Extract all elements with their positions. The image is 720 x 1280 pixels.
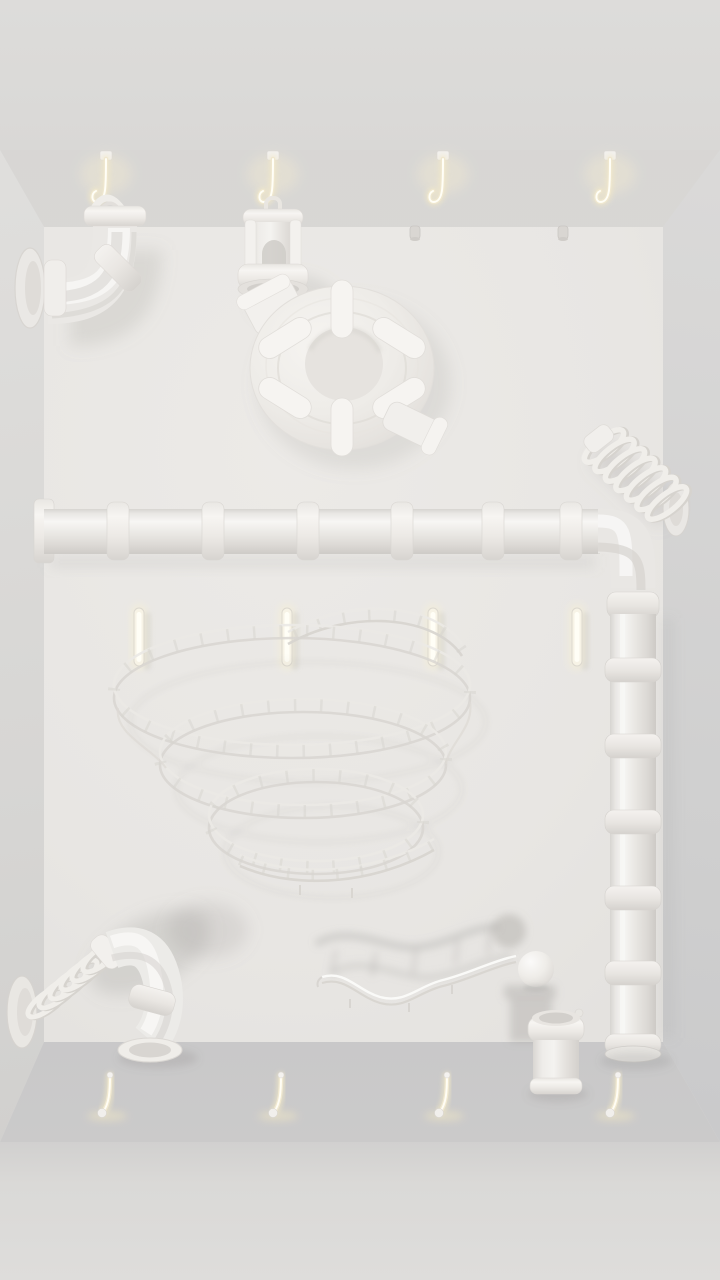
top-collar [84,206,146,226]
cup-body [533,1040,579,1082]
pipe-coupling [605,810,661,834]
cup-base [530,1078,582,1094]
pipe-coupling [605,734,661,758]
pipe-coupling [560,502,582,560]
wall-peg[interactable] [131,604,151,670]
pipe-coupling [391,502,413,560]
game-scene [0,0,720,1280]
pipe-coupling [605,961,661,985]
wall-peg[interactable] [569,604,589,670]
ceiling-hook[interactable] [584,151,636,202]
ceiling-hook[interactable] [417,151,469,202]
wavy-rail-track[interactable] [316,914,556,1042]
floor-hook[interactable] [87,1072,127,1121]
pipe-coupling [605,658,661,682]
wall-stub[interactable] [558,226,568,241]
ball[interactable] [518,951,554,987]
spring-elbow-bottom-left[interactable] [7,891,248,1068]
elbow-pipe-top-left[interactable] [15,198,146,328]
ceiling-hook[interactable] [80,151,132,202]
spiral-ring-slide[interactable] [234,272,451,469]
pipe-coupling [605,886,661,910]
track-shadow [316,926,512,978]
floor-hook[interactable] [595,1072,635,1121]
pipe-coupling [482,502,504,560]
pipe-coupling [202,502,224,560]
wall-stub[interactable] [410,226,420,241]
end-coupling [44,260,66,316]
pipe-coupling [107,502,129,560]
ball-shadow [492,914,526,948]
pipe-coupling [297,502,319,560]
floor-hook[interactable] [258,1072,298,1121]
floor-hook[interactable] [424,1072,464,1121]
ceiling-hook[interactable] [247,151,299,202]
floor-cup[interactable] [528,1009,588,1102]
